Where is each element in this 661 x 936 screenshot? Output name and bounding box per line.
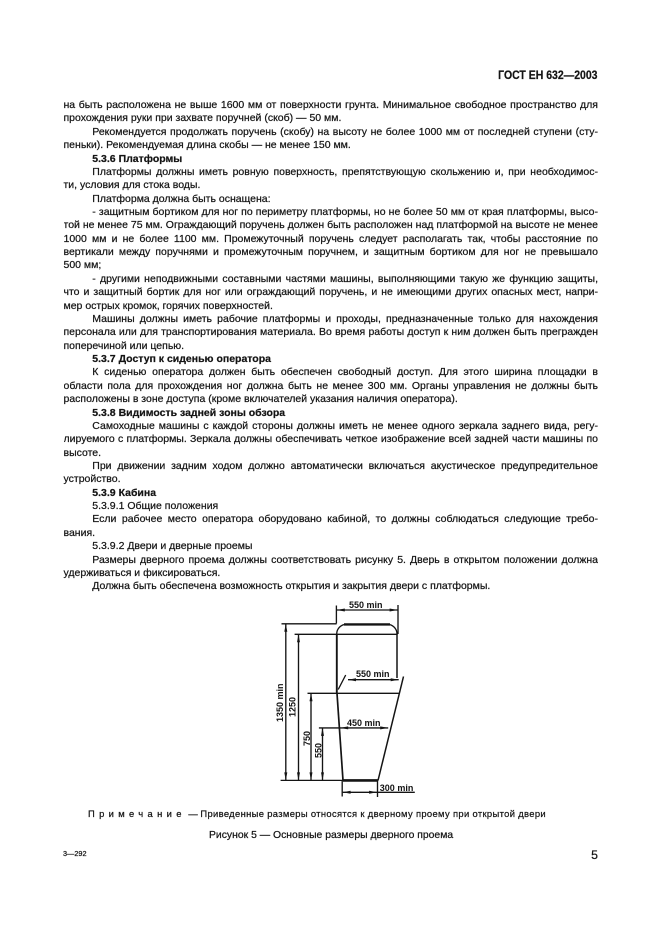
svg-text:550: 550: [313, 743, 323, 758]
svg-text:550 min: 550 min: [356, 669, 390, 679]
svg-text:1250: 1250: [288, 697, 298, 717]
svg-text:300 min: 300 min: [380, 783, 414, 793]
svg-text:1350 min: 1350 min: [275, 683, 285, 722]
svg-text:450 min: 450 min: [347, 718, 381, 728]
svg-text:750: 750: [302, 731, 312, 746]
svg-text:550 min: 550 min: [349, 600, 383, 610]
